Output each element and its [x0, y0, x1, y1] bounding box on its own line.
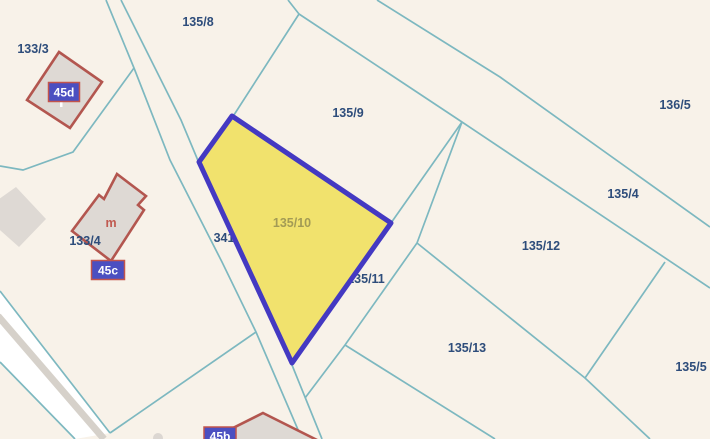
- address-marker-text: 45c: [98, 264, 118, 278]
- parcel-12-5-boundary: [585, 262, 665, 378]
- building-gray: [0, 187, 46, 247]
- wedge-line-1: [391, 122, 462, 223]
- address-markers-layer[interactable]: 45d45c45b: [49, 83, 237, 439]
- parcel-label-135-9: 135/9: [332, 106, 363, 120]
- address-marker-45c[interactable]: 45c: [92, 261, 125, 280]
- address-marker-text: 45b: [210, 430, 231, 439]
- parcel-label-133-3: 133/3: [17, 42, 48, 56]
- sw-road-to-main-road: [110, 332, 256, 433]
- address-marker-45b[interactable]: 45b: [204, 427, 236, 439]
- parcel-label-135-5: 135/5: [675, 360, 706, 374]
- parcel-13-south-boundary: [345, 345, 495, 439]
- building-letter-label: m: [105, 216, 116, 230]
- address-marker-text: 45d: [54, 86, 75, 100]
- parcel-label-135-8: 135/8: [182, 15, 213, 29]
- highlighted-parcel-label: 135/10: [273, 216, 311, 230]
- parcel-label-133-4: 133/4: [69, 234, 100, 248]
- small-circle-feature: [153, 433, 163, 439]
- parcel-label-135-4: 135/4: [607, 187, 638, 201]
- parcel-label-136-5: 136/5: [659, 98, 690, 112]
- parcel-8-9-boundary: [232, 0, 299, 118]
- cadastral-map-canvas[interactable]: 133/3135/8135/9136/5135/4135/12341135/11…: [0, 0, 710, 439]
- parcel-label-135-12: 135/12: [522, 239, 560, 253]
- diagonal-upper: [377, 0, 710, 227]
- parcel-label-135-13: 135/13: [448, 341, 486, 355]
- cadastral-map-viewport[interactable]: 133/3135/8135/9136/5135/4135/12341135/11…: [0, 0, 710, 439]
